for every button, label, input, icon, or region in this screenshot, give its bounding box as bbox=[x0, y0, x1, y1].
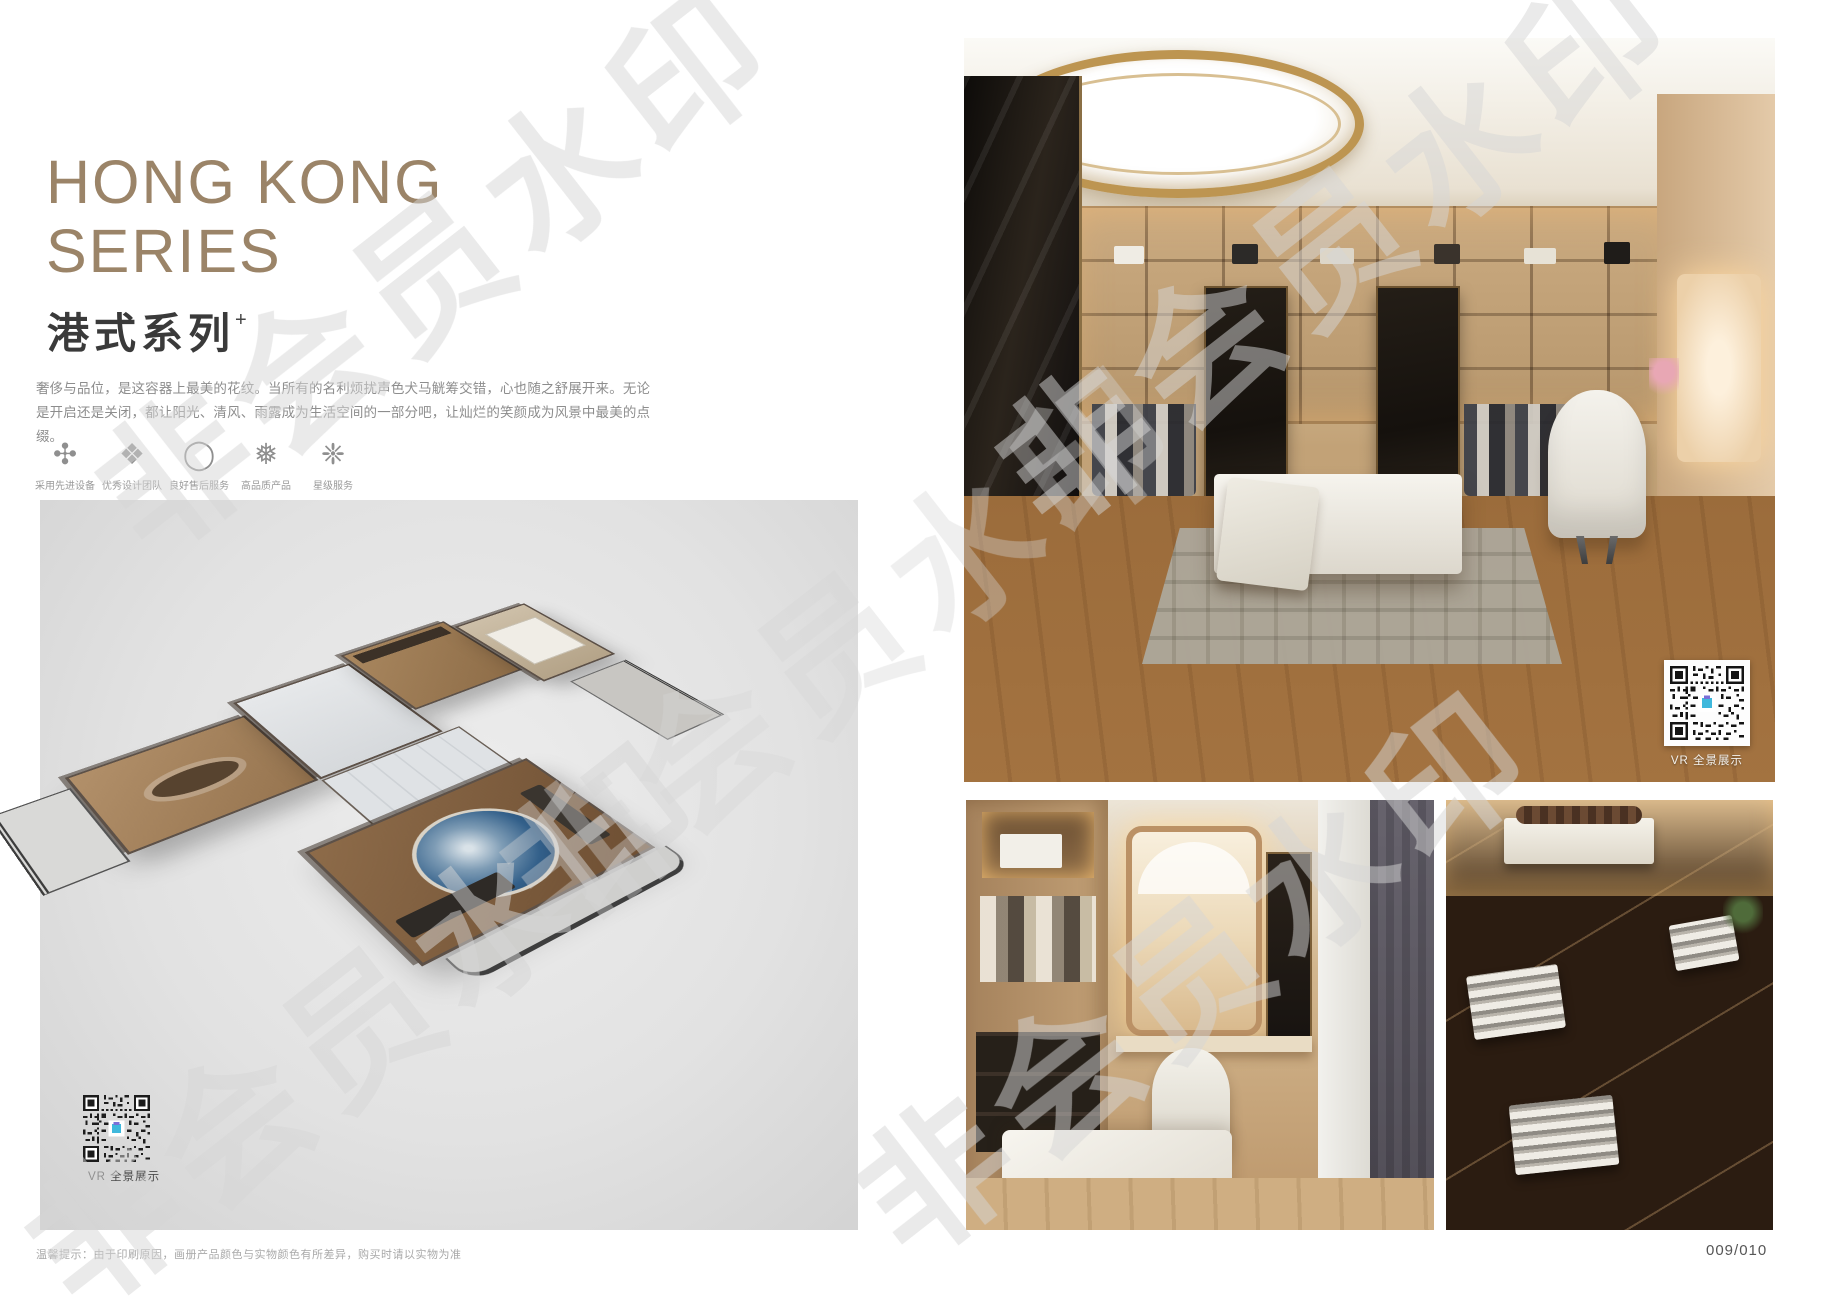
vanity-mirror-glow bbox=[1677, 274, 1761, 462]
page-number: 009/010 bbox=[1706, 1242, 1767, 1259]
ornament-star-icon: ❈ bbox=[302, 438, 364, 472]
dining-table bbox=[144, 755, 246, 804]
photo-dressing-table bbox=[966, 800, 1434, 1230]
subtitle-plus: + bbox=[235, 309, 247, 331]
handbag bbox=[1232, 244, 1258, 264]
pink-flowers bbox=[1649, 358, 1679, 404]
handbag bbox=[1604, 242, 1630, 264]
feature-label: 采用先进设备 bbox=[34, 477, 96, 492]
throw-blanket bbox=[1216, 477, 1320, 591]
folded-clothes bbox=[1320, 248, 1354, 264]
feature-quality-product: ❅ 高品质产品 bbox=[235, 438, 297, 492]
photo-walk-in-closet: VR 全景展示 bbox=[964, 38, 1775, 782]
title-line-1: HONG KONG bbox=[46, 148, 444, 217]
wood-floor bbox=[966, 1178, 1434, 1230]
folded-clothes bbox=[1524, 248, 1556, 264]
wardrobe-block bbox=[352, 626, 451, 663]
vr-panorama-label: VR 全景展示 bbox=[1671, 752, 1743, 768]
feature-label: 星级服务 bbox=[302, 477, 364, 492]
snowflake-icon: ❅ bbox=[235, 438, 297, 472]
hanging-clothes bbox=[980, 896, 1096, 982]
catalog-page: HONG KONG SERIES 港式系列+ 奢侈与品位，是这容器上最美的花纹。… bbox=[0, 0, 1836, 1307]
ring-swirl-icon: ◯ bbox=[168, 438, 230, 472]
folded-clothes-stack bbox=[1466, 964, 1566, 1040]
white-storage-box bbox=[1504, 818, 1654, 864]
hanging-clothes bbox=[1092, 404, 1196, 496]
feature-label: 优秀设计团队 bbox=[101, 477, 163, 492]
title-line-2: SERIES bbox=[46, 217, 444, 286]
white-column bbox=[1318, 800, 1370, 1230]
feature-after-sales: ◯ 良好售后服务 bbox=[168, 438, 230, 492]
floorplan-render bbox=[14, 593, 842, 1075]
terrace-right bbox=[570, 660, 724, 740]
diamond-lattice-icon: ❖ bbox=[101, 438, 163, 472]
qr-code-floorplan bbox=[83, 1095, 150, 1162]
white-chair bbox=[1548, 390, 1646, 538]
feature-label: 良好售后服务 bbox=[168, 477, 230, 492]
feature-label: 高品质产品 bbox=[235, 477, 297, 492]
vanity-desk bbox=[1116, 1036, 1312, 1052]
feature-list: ✣ 采用先进设备 ❖ 优秀设计团队 ◯ 良好售后服务 ❅ 高品质产品 ❈ 星级服… bbox=[34, 438, 364, 492]
qr-code-room bbox=[1664, 660, 1750, 746]
feature-star-service: ❈ 星级服务 bbox=[302, 438, 364, 492]
photo-shelf-closeup bbox=[1446, 800, 1773, 1230]
footer-disclaimer: 温馨提示：由于印刷原因，画册产品颜色与实物颜色有所差异，购买时请以实物为准 bbox=[36, 1246, 462, 1262]
feature-design-team: ❖ 优秀设计团队 bbox=[101, 438, 163, 492]
storage-box bbox=[1000, 834, 1062, 868]
subtitle-chinese: 港式系列+ bbox=[47, 300, 247, 361]
vanity-mirror bbox=[1126, 826, 1262, 1036]
page-title: HONG KONG SERIES bbox=[46, 148, 444, 286]
black-glass-cabinet bbox=[1266, 852, 1312, 1048]
floorplan-panel: VR 全景展示 bbox=[40, 500, 858, 1230]
green-plant bbox=[1723, 896, 1763, 936]
folded-clothes bbox=[1114, 246, 1144, 264]
feature-advanced-equipment: ✣ 采用先进设备 bbox=[34, 438, 96, 492]
folded-clothes-stack bbox=[1509, 1095, 1620, 1175]
handbag bbox=[1434, 244, 1460, 264]
vr-panorama-label: VR 全景展示 bbox=[88, 1168, 160, 1184]
corridor-glimpse bbox=[1370, 800, 1434, 1230]
woodgrain-lid bbox=[1516, 806, 1642, 824]
subtitle-text: 港式系列 bbox=[47, 310, 235, 357]
clover-petals-icon: ✣ bbox=[34, 438, 96, 472]
